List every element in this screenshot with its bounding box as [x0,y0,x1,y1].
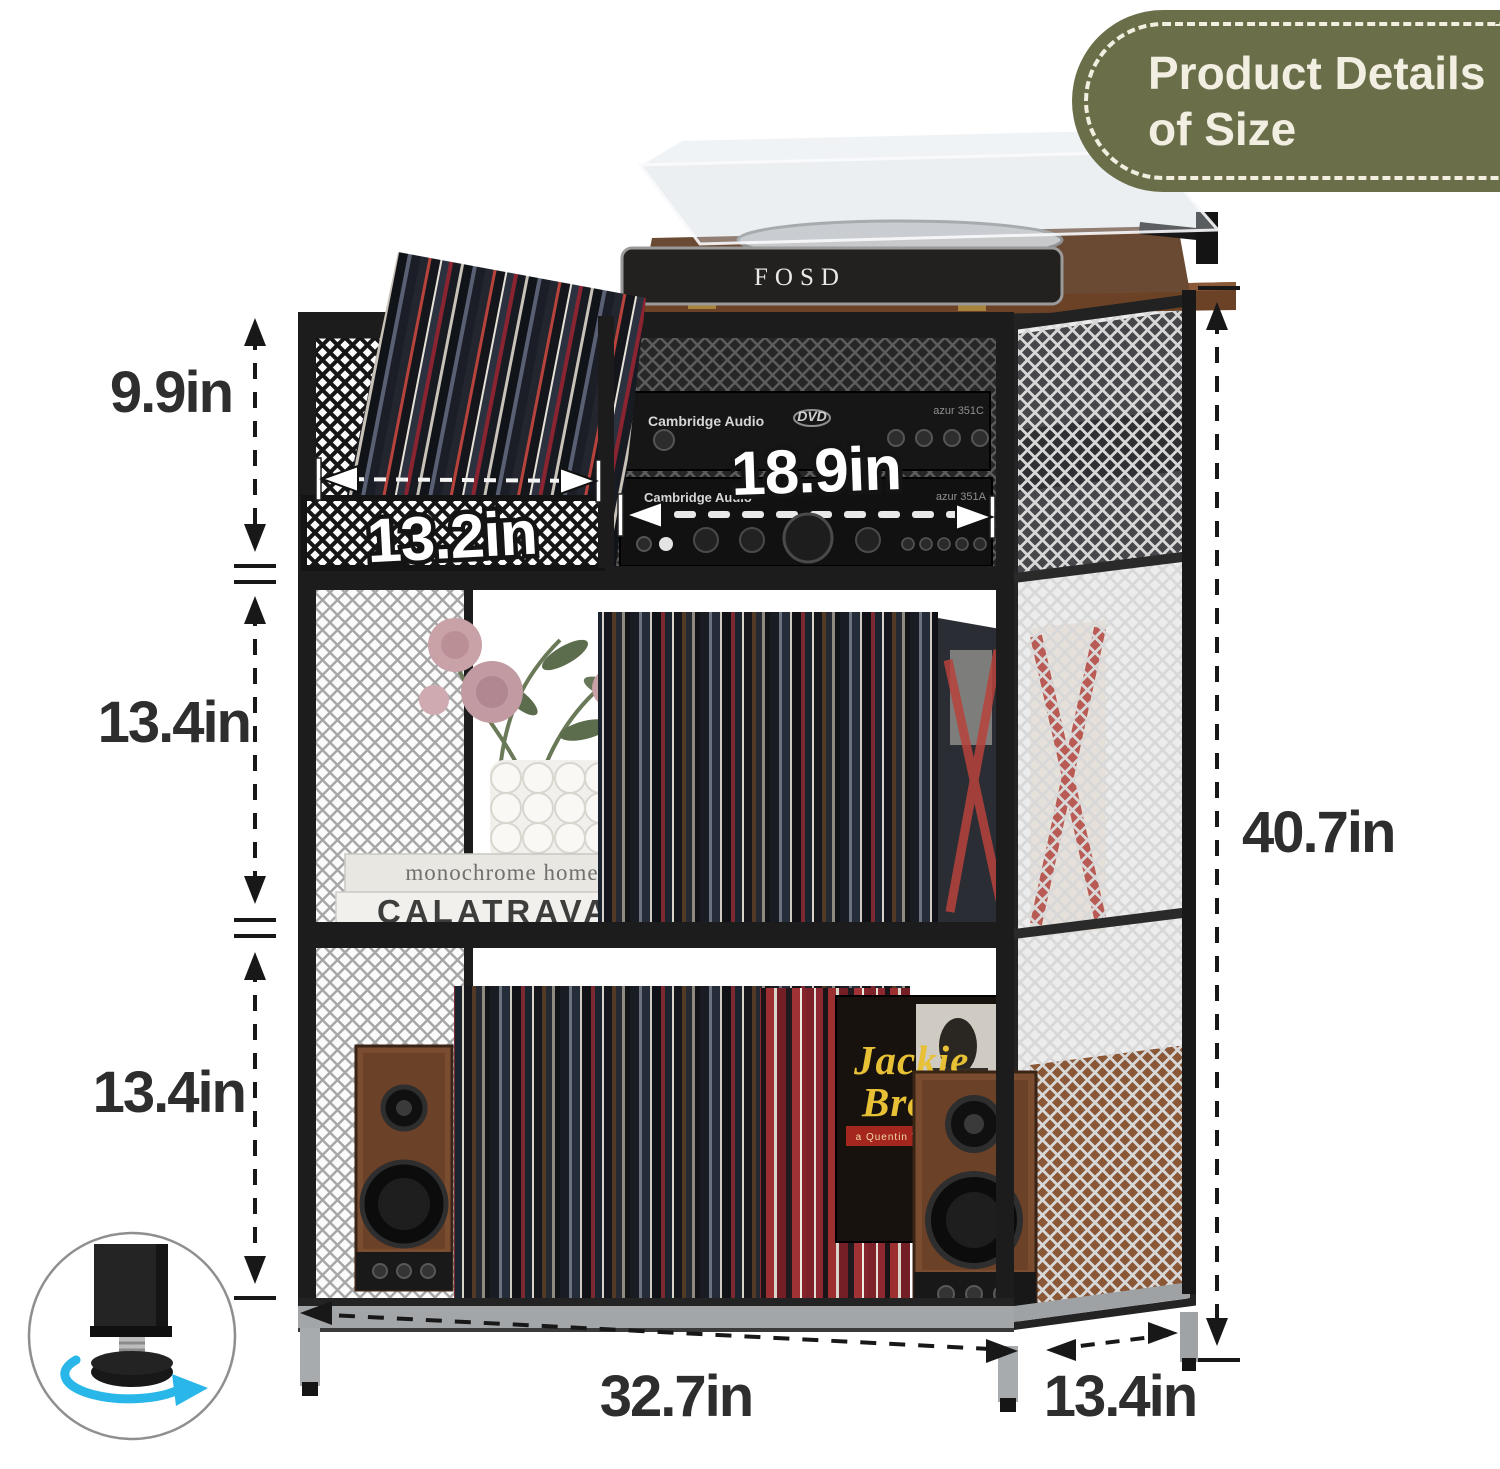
cd-player-brand: Cambridge Audio [648,413,764,429]
adjustable-foot-pad [91,1351,173,1387]
adjustable-foot-leg [90,1244,172,1337]
dim-middle-height: 13.4in [98,690,250,755]
shelf-right-side-panel [1014,292,1192,1326]
soundbar: FOSD [622,248,1062,304]
book-top-title: monochrome home [405,860,598,885]
dim-middle-cubby-width: 18.9in [730,434,902,509]
dim-bottom-height: 13.4in [93,1060,245,1125]
dim-depth: 13.4in [1044,1364,1196,1429]
amplifier-model: azur 351A [936,491,987,503]
middle-shelf-records [598,612,938,926]
badge-dashed-border: Product Details of Size [1084,22,1500,180]
turntable-brand-text: FOSD [754,264,846,291]
dim-total-width: 32.7in [600,1364,752,1429]
badge-title-line2: of Size [1148,101,1500,157]
bubble-vase [490,760,616,862]
left-speaker [356,1046,452,1290]
volume-knob [784,514,832,562]
shelf-illustration: FOSD Cambridge Audio DVD azur 351C Cambr… [0,0,1500,1469]
dvd-logo-text: DVD [797,408,827,424]
badge-title-line1: Product Details [1148,45,1500,101]
adjustable-foot-inset [29,1233,235,1439]
middle-shelf-leaning-record [938,618,1006,926]
cd-knob [654,430,674,450]
product-size-diagram: FOSD Cambridge Audio DVD azur 351C Cambr… [0,0,1500,1469]
cd-player-model: azur 351C [933,405,984,417]
dim-total-height: 40.7in [1242,800,1394,865]
middle-shelf: monochrome home CALATRAVA TASCHEN [306,590,1006,937]
bottom-shelf: Jackie Brown a Quentin Tarantino Film [306,948,1036,1316]
right-speaker [914,1072,1036,1316]
dim-left-cubby-width: 13.2in [365,499,538,577]
product-details-badge: Product Details of Size [1072,10,1500,192]
top-row-divider-post [598,316,614,568]
dim-top-height: 9.9in [110,360,232,425]
